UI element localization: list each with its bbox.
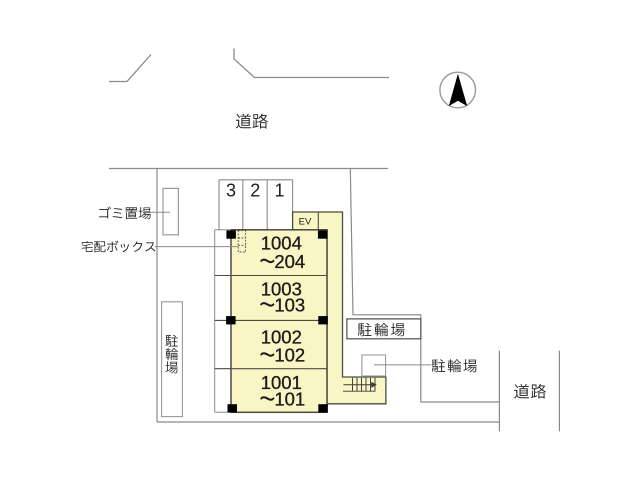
svg-text:3: 3 — [226, 181, 236, 201]
svg-text:204: 204 — [274, 251, 305, 272]
svg-text:1: 1 — [274, 181, 284, 201]
svg-text:EV: EV — [299, 217, 312, 228]
svg-text:2: 2 — [250, 181, 260, 201]
svg-text:101: 101 — [274, 388, 305, 409]
svg-text:103: 103 — [274, 294, 305, 315]
svg-text:102: 102 — [274, 344, 305, 365]
